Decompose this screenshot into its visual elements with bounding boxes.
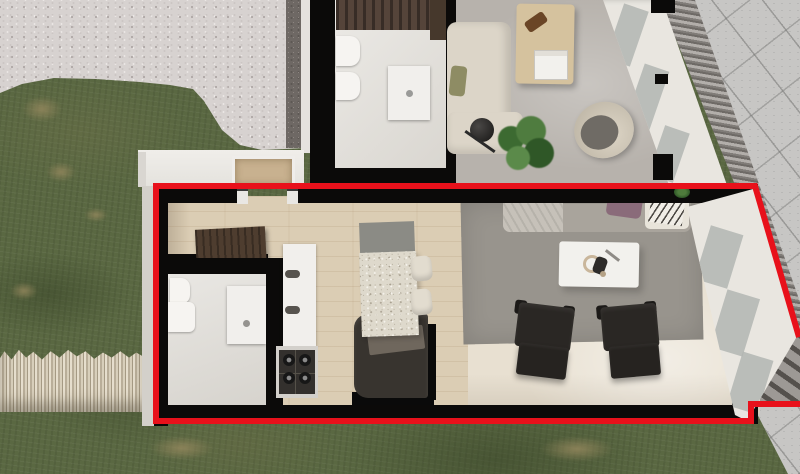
floorplan-render <box>0 0 800 474</box>
red-outline <box>0 0 800 474</box>
